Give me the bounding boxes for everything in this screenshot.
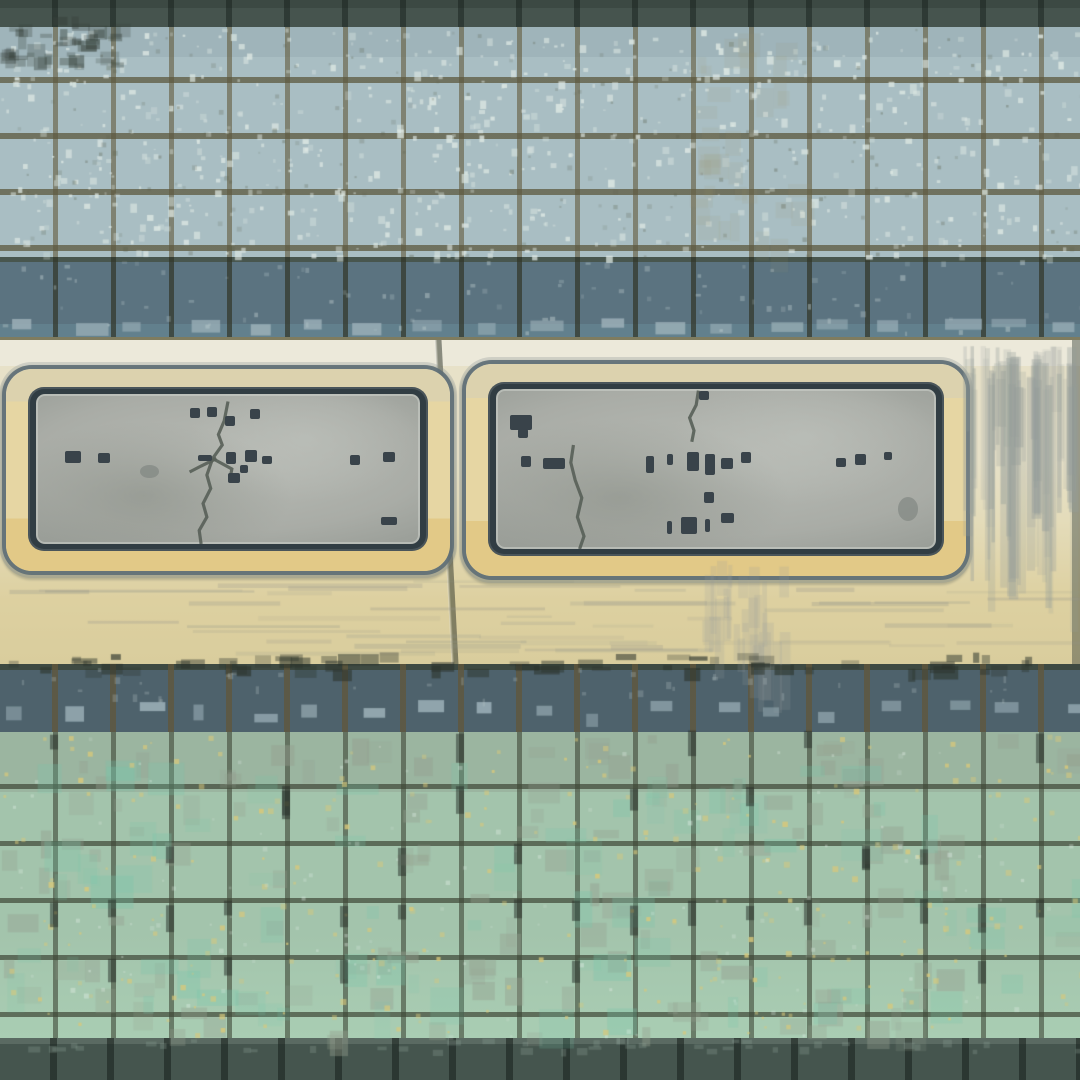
plaque-mark: [681, 517, 697, 534]
plaque-mark: [704, 492, 714, 503]
plaque-mark: [228, 473, 240, 483]
plaque-mark: [687, 452, 699, 472]
lower-slate-tile-row: [0, 664, 1080, 732]
plaque-mark: [521, 456, 531, 467]
plaque-mark: [250, 409, 260, 419]
plaque-mark: [884, 452, 892, 461]
bottom-dark-tile-band: [0, 1038, 1080, 1080]
plaque-mark: [140, 465, 159, 479]
plaque-mark: [667, 454, 673, 465]
plaque-mark: [855, 454, 867, 465]
plaque-mark: [646, 456, 654, 473]
upper-light-tile-grid: [0, 27, 1080, 257]
plaque-mark: [207, 407, 217, 417]
right-plaque-plate: [496, 389, 936, 549]
plaque-mark: [898, 497, 918, 521]
plaque-mark: [510, 415, 532, 430]
right-plaque: [466, 364, 966, 576]
cream-panel-band: [0, 337, 1080, 664]
plaque-mark: [245, 450, 257, 462]
plaque-mark: [98, 453, 110, 463]
crack-line: [571, 445, 584, 549]
plaque-mark: [383, 452, 395, 462]
plaque-mark: [240, 465, 248, 473]
plaque-mark: [518, 429, 528, 438]
top-dark-tile-band: [0, 0, 1080, 27]
crack-line: [690, 391, 699, 442]
left-plaque-plate: [36, 394, 420, 544]
crack-line: [199, 402, 228, 545]
lower-green-tile-grid: [0, 732, 1080, 1038]
plaque-mark: [721, 513, 734, 523]
plaque-mark: [262, 456, 272, 464]
plaque-mark: [721, 458, 733, 469]
plaque-mark: [225, 416, 235, 426]
upper-slate-tile-row: [0, 257, 1080, 337]
plaque-mark: [705, 519, 710, 532]
plaque-mark: [741, 452, 751, 463]
plaque-mark: [65, 451, 81, 463]
left-plaque: [6, 369, 450, 571]
plaque-mark: [667, 521, 672, 534]
plaque-mark: [350, 455, 360, 465]
plaque-mark: [381, 517, 397, 525]
panel-right-edge: [1072, 340, 1080, 664]
plaque-mark: [198, 455, 212, 461]
plaque-mark: [543, 458, 565, 469]
plaque-mark: [226, 452, 236, 464]
right-plaque-cracks: [496, 389, 936, 549]
plaque-mark: [705, 454, 715, 476]
plaque-mark: [699, 391, 709, 400]
plaque-mark: [836, 458, 846, 467]
plaque-mark: [190, 408, 200, 418]
tiled-wall-scene: [0, 0, 1080, 1080]
